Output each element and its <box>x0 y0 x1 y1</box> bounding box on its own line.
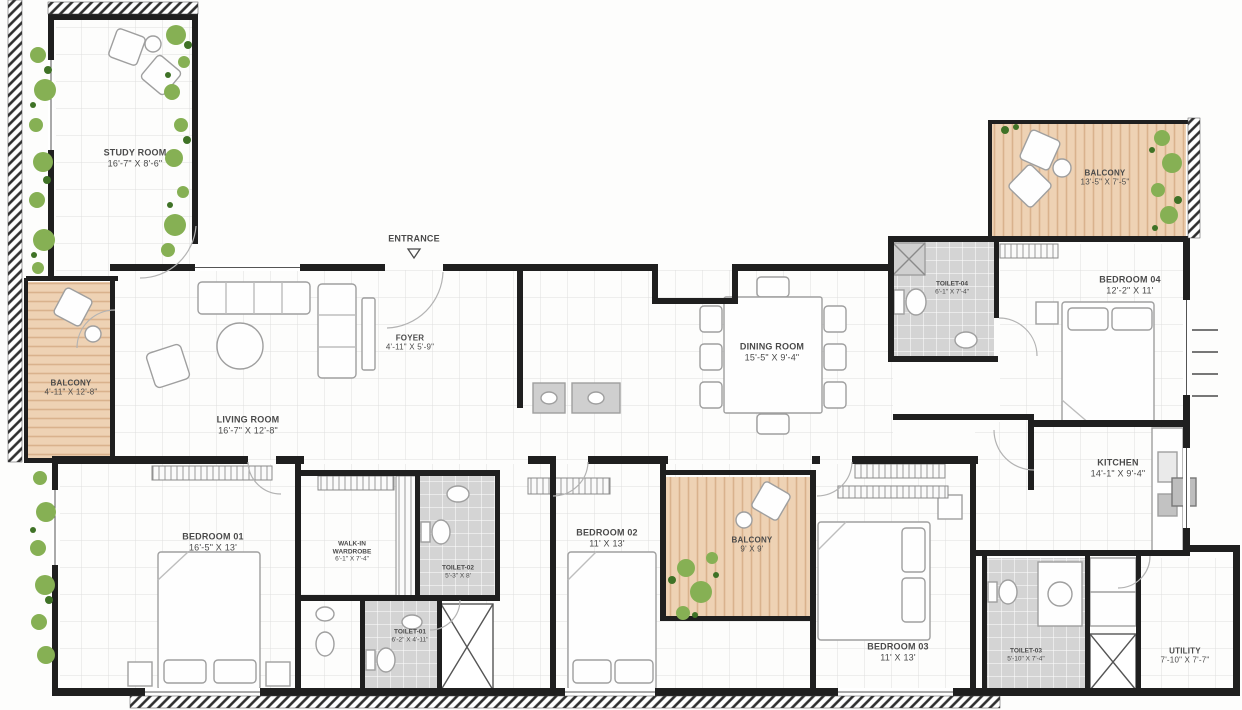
room-label-wardrobe: WALK-IN WARDROBE 6'-1" X 7'-4" <box>321 541 383 564</box>
room-label-balcony-left: BALCONY 4'-11" X 12'-8" <box>45 379 98 398</box>
room-label-balcony-tr: BALCONY 13'-5" X 7'-5" <box>1081 169 1130 188</box>
room-label-utility: UTILITY 7'-10" X 7'-7" <box>1161 647 1210 666</box>
bed-bedroom2 <box>568 552 656 690</box>
room-label-kitchen: KITCHEN 14'-1" X 9'-4" <box>1091 457 1146 478</box>
entrance-arrow-icon <box>408 249 420 258</box>
floorplan-canvas <box>0 0 1242 710</box>
room-label-toilet4: TOILET-04 6'-1" X 7'-4" <box>935 280 969 295</box>
room-label-foyer: FOYER 4'-11" X 5'-9" <box>386 334 434 353</box>
room-label-toilet1: TOILET-01 6'-2" X 4'-11" <box>392 628 429 643</box>
room-label-bedroom1: BEDROOM 01 16'-5" X 13' <box>182 531 244 552</box>
room-label-study: STUDY ROOM 16'-7" X 8'-6" <box>104 147 167 168</box>
room-label-toilet2: TOILET-02 5'-3" X 8' <box>442 564 474 579</box>
room-label-living: LIVING ROOM 16'-7" X 12'-8" <box>217 414 280 435</box>
room-label-balcony-center: BALCONY 9' X 9' <box>732 536 773 555</box>
entrance-label-text: ENTRANCE <box>388 234 440 245</box>
room-label-bedroom4: BEDROOM 04 12'-2" X 11' <box>1099 274 1161 295</box>
entrance-label: ENTRANCE <box>388 234 440 245</box>
room-label-bedroom3: BEDROOM 03 11' X 13' <box>867 641 929 662</box>
room-label-bedroom2: BEDROOM 02 11' X 13' <box>576 527 638 548</box>
floorplan-page: ENTRANCE STUDY ROOM 16'-7" X 8'-6" BALCO… <box>0 0 1242 710</box>
room-label-toilet3: TOILET-03 5'-10" X 7'-4" <box>1007 647 1044 662</box>
room-label-dining: DINING ROOM 15'-5" X 9'-4" <box>740 341 804 362</box>
